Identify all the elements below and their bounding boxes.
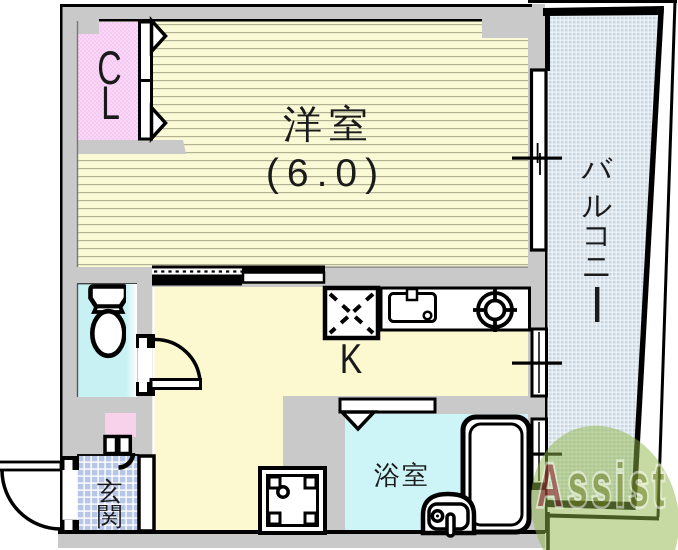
svg-text:K: K (340, 337, 362, 383)
svg-text:A: A (537, 454, 562, 520)
svg-text:L: L (101, 77, 120, 130)
svg-text:ssist: ssist (568, 454, 668, 520)
svg-text:(6.0): (6.0) (266, 152, 386, 195)
